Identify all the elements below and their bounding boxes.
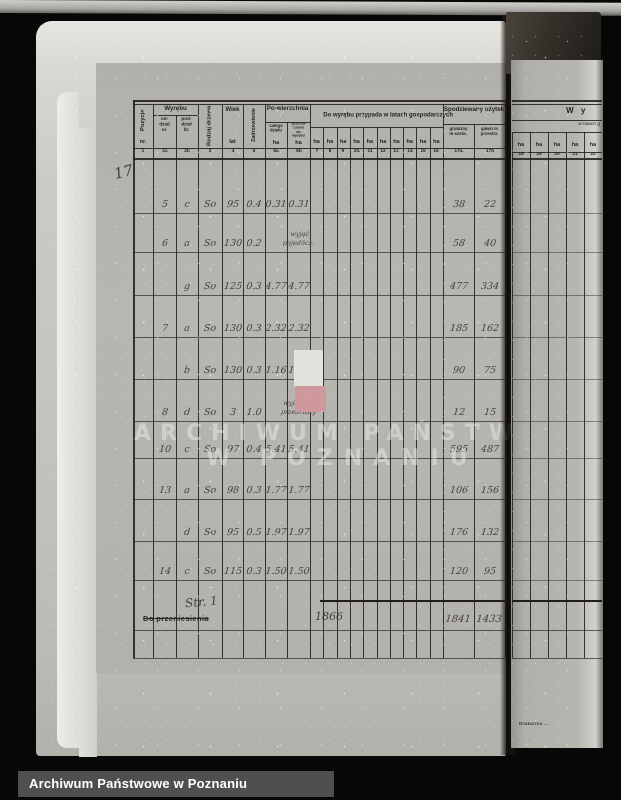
grid-line [566,132,567,658]
cell-pow_calego: 1.77 [265,484,288,497]
col-number: 5 [247,149,261,154]
cell-poddzial: c [184,198,191,211]
cell-wiek: 130 [223,237,243,250]
col-number: 4 [225,149,239,154]
cell-zadrzewienie: 0.4 [246,198,262,211]
cell-rodzaj: So [203,237,217,250]
cell-galezi: 22 [483,198,496,211]
col-header-rodzaj-drzewa: Rodzaj drzewa [199,105,221,146]
col-header-ha: ha [567,142,583,148]
col-number: 17a. [451,149,465,154]
cell-rodzaj: So [203,322,217,335]
grid-line [512,379,602,380]
col-header-galezi: gałęzi m przestrz. [478,127,500,137]
grid-line [512,132,602,133]
grid-line [363,127,364,658]
grid-line [403,127,404,658]
grid-line [153,115,198,116]
cell-wiek: 130 [223,364,243,377]
watermark-line2: W POZNANIU [206,446,479,471]
grid-line [377,127,378,658]
grid-line [176,115,177,658]
col-header-ha: ha [549,142,565,148]
cell-rodzaj: So [203,280,217,293]
col-number: 16 [429,149,443,154]
grid-line [512,100,602,102]
grid-line [133,295,505,296]
cell-poddzial: b [183,364,190,377]
cell-pow_calego: 1.16 [265,364,288,377]
archive-caption-bar: Archiwum Państwowe w Poznaniu [18,771,334,797]
cell-galezi: 162 [480,322,500,335]
cell-grubizny: 106 [449,484,469,497]
col-header-spodziewany: Spodziewany użytek [443,106,505,113]
col-header-oddzial: od-dział nr. [156,117,172,133]
cell-pow_calego: 0.31 [265,198,288,211]
cell-rodzaj: So [203,198,217,211]
right-table-subtitle: w latach g [541,122,600,127]
col-number: 2a [157,149,171,154]
cell-grubizny: 185 [449,322,469,335]
footer-total-galezi: 1433 [476,614,503,625]
grid-line [512,158,602,160]
grid-line [512,132,513,658]
col-number: 18 [514,152,528,157]
col-header-pow-calego: całego działu [268,124,283,134]
grid-line [243,104,244,659]
col-number: 7 [309,149,323,154]
grid-line [512,600,602,602]
grid-line [443,104,444,659]
underlying-page-edge [79,128,97,757]
cell-grubizny: 477 [449,280,469,293]
grid-line [153,104,154,659]
col-number: 6b [291,149,305,154]
col-number: 22 [586,152,600,157]
cell-poddzial: a [183,484,190,497]
grid-line [133,541,505,542]
footer-carry-label: Do przeniesienia [143,614,209,623]
grid-line [133,499,505,500]
col-header-powierzchnia: Po-wierzchnia [265,105,310,112]
cell-rodzaj: So [203,364,217,377]
footer-total-grubizny: 1841 [445,614,472,625]
col-number: 6a [269,149,283,154]
col-header-ha: ha [265,140,287,146]
cell-pow_wyrebu: 2.32 [287,322,310,335]
cell-poddzial: g [183,280,190,293]
cell-galezi: 334 [480,280,500,293]
cell-wiek: 115 [223,565,243,578]
col-header-grubizny: grubizny m-sześc. [447,127,469,137]
cell-rodzaj: So [203,406,217,419]
col-header-ha: ha [585,142,601,148]
cell-rodzaj: So [203,565,217,578]
col-header-wyrebu: Wyrębu [153,105,198,112]
col-header-ha: ha [428,139,444,145]
cell-poddzial: a [183,322,190,335]
color-patch-white [294,350,323,387]
grid-line [512,421,602,422]
cell-wiek: 125 [223,280,243,293]
cell-wiek: 98 [226,484,239,497]
grid-line [133,213,505,214]
grid-line [133,337,505,338]
col-header-zadrzewienie: Zadrzewienie [244,105,264,146]
col-header-pozycja: Pozycja [134,105,153,136]
col-header-wiek: Wiek [222,107,243,114]
cell-oddzial: 5 [161,198,168,211]
cell-zadrzewienie: 0.3 [246,280,262,293]
col-header-pozycja-unit: nr. [133,139,153,145]
cell-oddzial: 7 [161,322,168,335]
col-number: 13 [389,149,403,154]
col-number: 2b [180,149,194,154]
grid-line [133,630,505,631]
cell-galezi: 95 [483,565,496,578]
right-table-title: W y [552,106,602,115]
cell-pow_wyrebu: 4.77 [287,280,310,293]
cell-zadrzewienie: 0.3 [246,322,262,335]
grid-line [512,580,602,581]
cell-rodzaj: So [203,526,217,539]
grid-line [133,580,505,581]
grid-line [512,252,602,253]
grid-line [530,132,531,658]
col-number: 17b [482,149,496,154]
cell-oddzial: 14 [158,565,171,578]
cell-oddzial: 6 [161,237,168,250]
cell-oddzial: 8 [161,406,168,419]
cell-grubizny: 176 [449,526,469,539]
cell-pow_calego: 2.32 [265,322,288,335]
col-number: 19 [532,152,546,157]
footer-page-note: Str. 1 [184,594,218,611]
col-number: 3 [203,149,217,154]
cell-grubizny: 90 [452,364,465,377]
underlying-page-edge [57,92,79,748]
grid-line [512,458,602,459]
grid-line [133,100,135,658]
cell-grubizny: 120 [449,565,469,578]
cell-pow_calego: 1.97 [265,526,288,539]
grid-line [337,127,338,658]
col-number: 20 [550,152,564,157]
col-header-ha: ha [531,142,547,148]
cell-pow_wyrebu: 1.97 [287,526,310,539]
right-page-table: W y w latach g ha18ha19ha20ha21ha22 [512,100,602,658]
grid-line [512,337,602,338]
cell-poddzial: a [183,237,190,250]
col-header-poddzial: pod-dział lit. [178,117,194,133]
grid-line [310,127,443,128]
cell-poddzial: c [184,565,191,578]
col-header-ha: ha [513,142,529,148]
cell-zadrzewienie: 0.5 [246,526,262,539]
cell-grubizny: 38 [452,198,465,211]
grid-line [512,104,602,105]
cell-pow_calego: 1.50 [265,565,288,578]
grid-line [512,120,602,121]
col-number: 14 [403,149,417,154]
archive-caption: Archiwum Państwowe w Poznaniu [29,776,247,791]
grid-line [133,100,505,102]
cell-poddzial: d [183,526,190,539]
grid-line [390,127,391,658]
cell-oddzial: 13 [158,484,171,497]
archival-photo: Pozycja nr. Wyrębu od-dział nr. pod-dzia… [0,0,621,800]
grid-line [512,295,602,296]
cell-note: wyjąć pojedńcz. [258,230,341,249]
grid-line [512,541,602,542]
col-header-do-wyrebu: Do wyrębu przypada w latach gospodarczyc… [323,112,429,119]
grid-line [133,158,505,160]
cell-wiek: 95 [226,526,239,539]
cell-grubizny: 12 [452,406,465,419]
cell-zadrzewienie: 0.3 [246,484,262,497]
col-header-pow-przeznaczona: przezna-czona do wyrębu [292,122,306,138]
grid-line [320,600,505,602]
cell-pow_wyrebu: 0.31 [287,198,310,211]
grid-line [443,124,505,125]
cell-poddzial: d [183,406,190,419]
cell-zadrzewienie: 0.3 [246,565,262,578]
grid-line [133,252,505,253]
col-header-ha: ha [287,140,310,146]
cell-pow_calego: 4.77 [265,280,288,293]
cell-pow_wyrebu: 1.77 [287,484,310,497]
grid-line [430,127,431,658]
grid-line [512,499,602,500]
cell-zadrzewienie: 0.3 [246,364,262,377]
cell-galezi: 75 [483,364,496,377]
col-number: 9 [336,149,350,154]
col-header-wiek-unit: lat [222,139,243,145]
grid-line [512,213,602,214]
cell-wiek: 130 [223,322,243,335]
cell-galezi: 15 [483,406,496,419]
cell-galezi: 156 [480,484,500,497]
cell-rodzaj: So [203,484,217,497]
color-patch-red [295,386,326,412]
grid-line [512,630,602,631]
grid-line [548,132,549,658]
footer-carry-year: 1866 [315,610,343,623]
cell-grubizny: 58 [452,237,465,250]
cell-galezi: 132 [480,526,500,539]
grid-line [584,132,585,658]
cell-galezi: 40 [483,237,496,250]
grid-line [350,127,351,658]
cell-wiek: 95 [226,198,239,211]
grid-line [474,124,475,658]
col-number: 10. [349,149,363,154]
grid-line [416,127,417,658]
printer-imprint: Drukarnia … [519,722,579,726]
grid-line [198,104,199,659]
cell-pow_wyrebu: 1.50 [287,565,310,578]
cell-wiek: 3 [229,406,236,419]
col-number: 21 [568,152,582,157]
col-number: 1 [136,149,150,154]
